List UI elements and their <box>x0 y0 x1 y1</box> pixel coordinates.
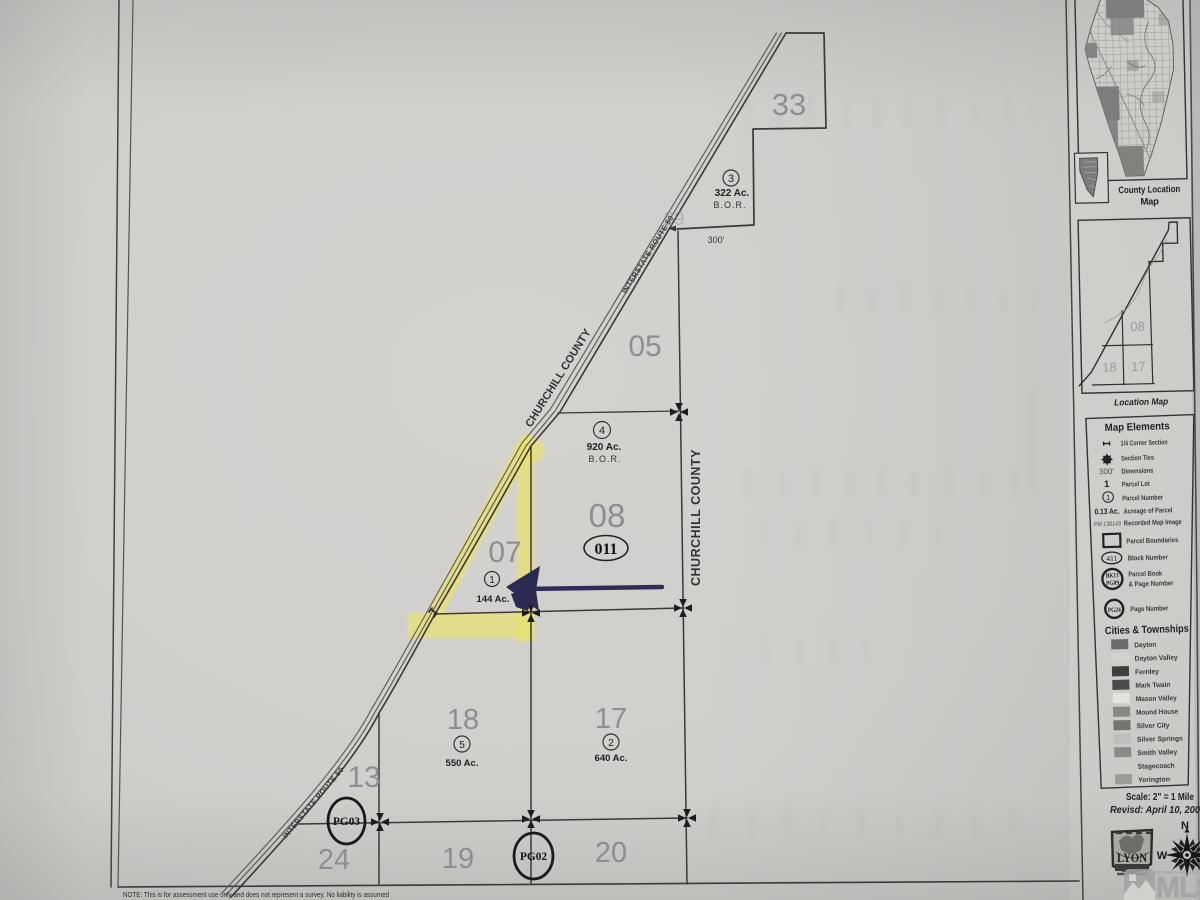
svg-text:13: 13 <box>347 761 380 794</box>
svg-text:Parcel Book: Parcel Book <box>1128 571 1162 579</box>
svg-text:W: W <box>1157 850 1168 862</box>
svg-text:411: 411 <box>1106 554 1117 563</box>
svg-text:19: 19 <box>442 843 474 875</box>
svg-text:300': 300' <box>708 235 725 245</box>
svg-text:PG02: PG02 <box>520 851 547 863</box>
svg-text:Mound House: Mound House <box>1136 709 1178 717</box>
svg-text:18: 18 <box>1102 359 1117 374</box>
svg-text:Map Elements: Map Elements <box>1105 420 1170 434</box>
svg-text:300': 300' <box>1099 467 1115 476</box>
svg-text:Dayton Valley: Dayton Valley <box>1135 655 1178 663</box>
svg-text:920 Ac.: 920 Ac. <box>587 442 622 453</box>
svg-text:Fernley: Fernley <box>1135 669 1159 677</box>
svg-text:LYON: LYON <box>1117 850 1147 865</box>
svg-text:CHURCHILL COUNTY: CHURCHILL COUNTY <box>689 449 703 586</box>
svg-text:011: 011 <box>594 541 617 558</box>
svg-text:Silver City: Silver City <box>1136 722 1169 730</box>
svg-text:Smith Valley: Smith Valley <box>1137 749 1177 757</box>
svg-text:550 Ac.: 550 Ac. <box>446 758 479 769</box>
svg-text:Parcel Number: Parcel Number <box>1122 494 1163 502</box>
svg-text:MLS: MLS <box>1156 872 1200 900</box>
svg-text:Map: Map <box>1140 196 1159 207</box>
svg-text:Stagecoach: Stagecoach <box>1138 763 1175 771</box>
svg-text:2: 2 <box>608 738 614 749</box>
svg-text:08: 08 <box>589 497 626 534</box>
svg-text:Location Map: Location Map <box>1114 396 1169 407</box>
svg-text:PM 138149: PM 138149 <box>1094 521 1121 529</box>
svg-text:05: 05 <box>628 330 661 363</box>
svg-text:1: 1 <box>489 575 495 586</box>
svg-text:Dayton: Dayton <box>1134 642 1156 650</box>
svg-text:& Page Number: & Page Number <box>1128 580 1173 588</box>
svg-text:Parcel Lot: Parcel Lot <box>1122 481 1151 489</box>
svg-text:Dimensions: Dimensions <box>1121 468 1153 476</box>
svg-text:1/4 Corner Section: 1/4 Corner Section <box>1121 439 1168 447</box>
svg-text:20: 20 <box>595 837 627 869</box>
svg-text:PG24: PG24 <box>1108 607 1122 614</box>
svg-text:Scale: 2" = 1 Mile: Scale: 2" = 1 Mile <box>1126 792 1194 803</box>
svg-text:07: 07 <box>488 536 521 569</box>
svg-text:Yerington: Yerington <box>1138 776 1170 784</box>
svg-text:Mason Valley: Mason Valley <box>1136 695 1177 703</box>
svg-text:33: 33 <box>772 87 806 122</box>
svg-text:PG03: PG03 <box>333 816 360 828</box>
svg-text:Block Number: Block Number <box>1128 554 1168 562</box>
svg-text:NOTE: This is for assessment u: NOTE: This is for assessment use only an… <box>123 892 389 899</box>
svg-text:4: 4 <box>599 425 605 437</box>
svg-text:Section Ties: Section Ties <box>1121 455 1154 463</box>
svg-text:PG09: PG09 <box>1106 580 1120 587</box>
svg-text:BK13: BK13 <box>1106 572 1120 579</box>
svg-text:3: 3 <box>728 173 734 185</box>
svg-text:18: 18 <box>447 704 479 736</box>
svg-text:Revisd: April 10, 200: Revisd: April 10, 200 <box>1110 805 1200 816</box>
svg-text:County Location: County Location <box>1118 184 1180 196</box>
svg-text:B.O.R.: B.O.R. <box>588 454 621 464</box>
svg-text:B.O.R.: B.O.R. <box>713 200 746 210</box>
svg-text:Cities & Townships: Cities & Townships <box>1105 623 1189 637</box>
svg-text:17: 17 <box>595 703 627 735</box>
svg-text:Silver Springs: Silver Springs <box>1137 735 1183 743</box>
svg-text:08: 08 <box>1130 319 1145 334</box>
svg-text:640 Ac.: 640 Ac. <box>595 753 628 764</box>
svg-text:24: 24 <box>318 844 350 876</box>
svg-text:5: 5 <box>459 740 465 751</box>
svg-text:17: 17 <box>1131 359 1146 374</box>
svg-text:1: 1 <box>1106 493 1110 502</box>
svg-text:Page Number: Page Number <box>1130 605 1168 613</box>
svg-text:322 Ac.: 322 Ac. <box>715 188 750 199</box>
svg-text:Mark Twain: Mark Twain <box>1135 682 1170 690</box>
svg-text:Acreage of Parcel: Acreage of Parcel <box>1123 507 1172 515</box>
svg-text:0.13 Ac.: 0.13 Ac. <box>1094 507 1119 517</box>
svg-text:Parcel Boundaries: Parcel Boundaries <box>1126 537 1178 545</box>
svg-text:144 Ac.: 144 Ac. <box>477 594 510 605</box>
